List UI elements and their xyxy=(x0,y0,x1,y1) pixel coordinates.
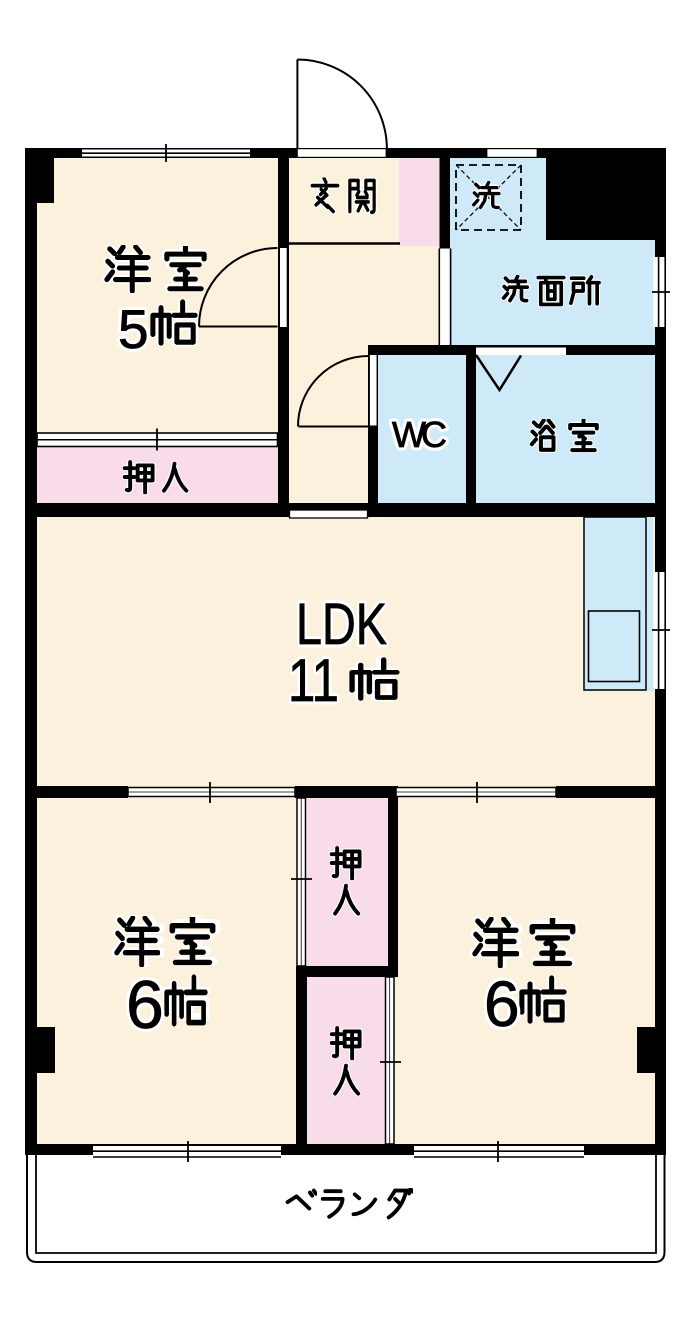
svg-text:5: 5 xyxy=(118,298,149,360)
svg-text:6: 6 xyxy=(126,967,164,1043)
svg-text:WC: WC xyxy=(392,414,447,455)
svg-text:11: 11 xyxy=(288,647,339,714)
svg-text:6: 6 xyxy=(484,968,520,1040)
